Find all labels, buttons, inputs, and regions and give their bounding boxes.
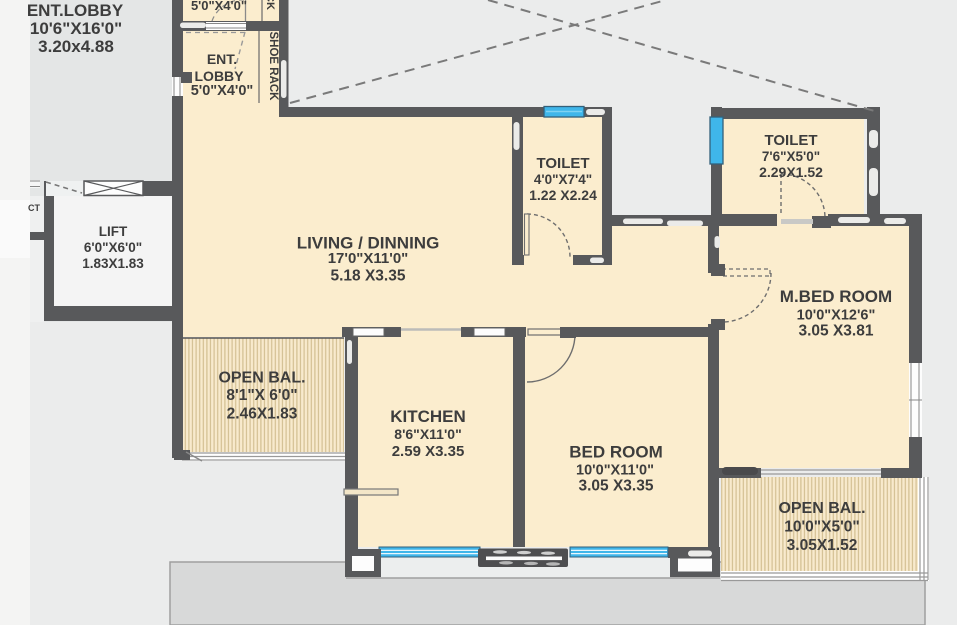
svg-text:2.29X1.52: 2.29X1.52 xyxy=(759,164,823,180)
svg-text:CT: CT xyxy=(28,203,40,213)
svg-text:5'0"X4'0": 5'0"X4'0" xyxy=(191,83,254,99)
svg-text:10'0"X12'6": 10'0"X12'6" xyxy=(797,308,876,324)
svg-text:M.BED ROOM: M.BED ROOM xyxy=(780,287,892,306)
svg-text:OPEN BAL.: OPEN BAL. xyxy=(778,500,865,517)
svg-text:4'0"X7'4": 4'0"X7'4" xyxy=(534,172,592,187)
svg-text:1.22 X2.24: 1.22 X2.24 xyxy=(529,187,597,203)
svg-text:LIFT: LIFT xyxy=(99,224,128,239)
svg-text:BED ROOM: BED ROOM xyxy=(569,443,663,462)
svg-text:7'6"X5'0": 7'6"X5'0" xyxy=(762,149,820,164)
svg-text:2.46X1.83: 2.46X1.83 xyxy=(227,406,298,423)
svg-text:TOILET: TOILET xyxy=(764,132,817,149)
svg-text:3.05X1.52: 3.05X1.52 xyxy=(787,537,858,554)
svg-text:6'0"X6'0": 6'0"X6'0" xyxy=(84,240,142,255)
svg-text:2.59 X3.35: 2.59 X3.35 xyxy=(392,443,465,460)
svg-text:3.20x4.88: 3.20x4.88 xyxy=(38,37,114,56)
svg-text:CK: CK xyxy=(264,0,276,10)
svg-text:1.83X1.83: 1.83X1.83 xyxy=(82,256,144,271)
svg-text:17'0"X11'0": 17'0"X11'0" xyxy=(328,250,409,267)
svg-text:10'0"X11'0": 10'0"X11'0" xyxy=(576,463,654,479)
svg-text:ENT.: ENT. xyxy=(207,51,237,67)
svg-text:3.05 X3.81: 3.05 X3.81 xyxy=(799,323,874,340)
svg-text:OPEN BAL.: OPEN BAL. xyxy=(218,370,305,387)
svg-text:10'0"X5'0": 10'0"X5'0" xyxy=(784,519,860,536)
svg-text:5.18 X3.35: 5.18 X3.35 xyxy=(331,268,406,285)
svg-text:ENT.LOBBY: ENT.LOBBY xyxy=(27,1,124,20)
svg-text:8'1"X 6'0": 8'1"X 6'0" xyxy=(226,387,297,404)
svg-text:SHOE RACK: SHOE RACK xyxy=(267,31,279,101)
svg-text:8'6"X11'0": 8'6"X11'0" xyxy=(394,426,461,442)
svg-text:KITCHEN: KITCHEN xyxy=(390,407,466,426)
svg-text:LOBBY: LOBBY xyxy=(195,68,245,84)
svg-text:5'0"X4'0": 5'0"X4'0" xyxy=(191,0,247,13)
svg-text:TOILET: TOILET xyxy=(536,155,589,172)
svg-text:3.05 X3.35: 3.05 X3.35 xyxy=(579,478,654,495)
svg-text:10'6"X16'0": 10'6"X16'0" xyxy=(30,19,122,38)
